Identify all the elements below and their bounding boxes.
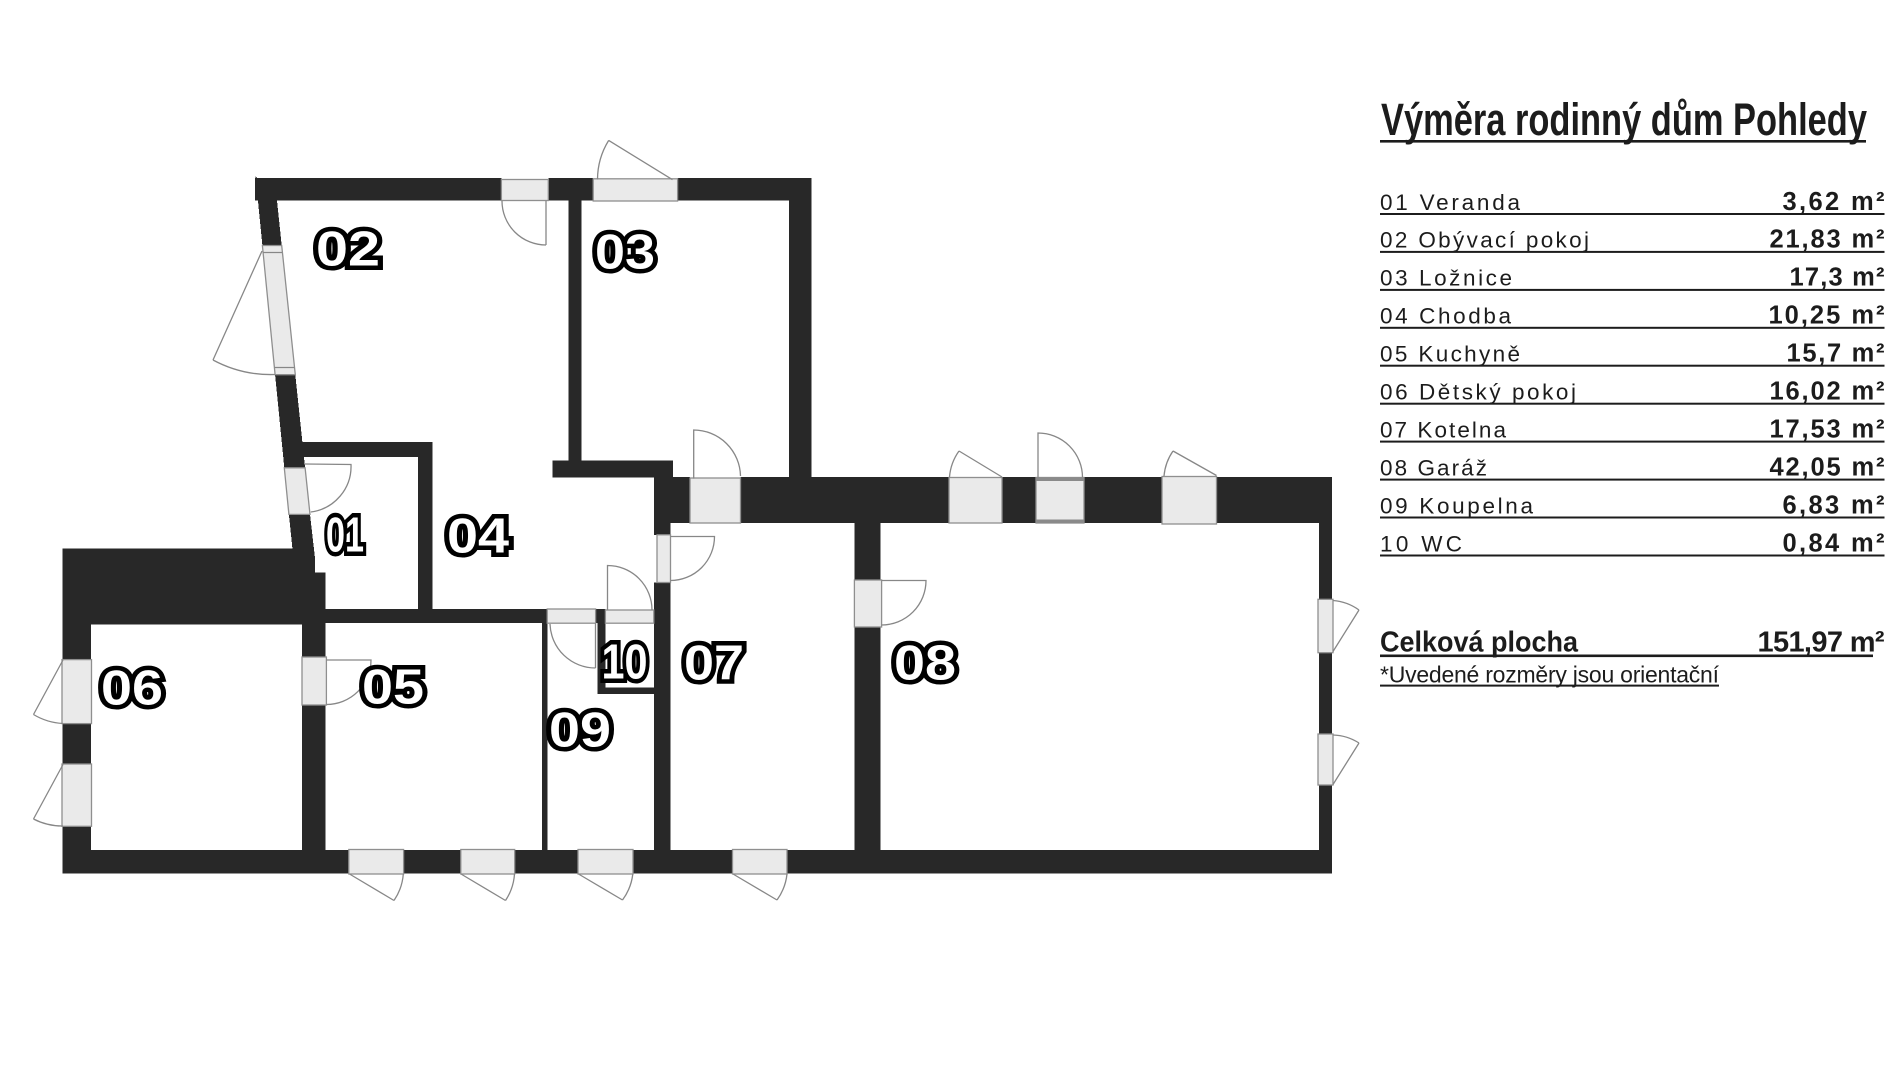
svg-text:21,83 m²: 21,83 m²: [1770, 226, 1885, 254]
svg-text:06 Dětský pokoj: 06 Dětský pokoj: [1380, 380, 1576, 405]
svg-text:16,02 m²: 16,02 m²: [1770, 378, 1885, 406]
svg-text:Výměra rodinný dům Pohledy: Výměra rodinný dům Pohledy: [1381, 94, 1867, 145]
svg-text:15,7 m²: 15,7 m²: [1787, 340, 1885, 368]
svg-text:06: 06: [101, 662, 163, 716]
svg-text:17,53 m²: 17,53 m²: [1770, 415, 1885, 443]
svg-text:03: 03: [595, 226, 655, 280]
svg-text:10 WC: 10 WC: [1380, 531, 1462, 556]
svg-text:10: 10: [602, 636, 648, 690]
svg-text:42,05 m²: 42,05 m²: [1770, 453, 1885, 481]
svg-text:04: 04: [447, 510, 509, 564]
svg-text:02 Obývací pokoj: 02 Obývací pokoj: [1380, 228, 1589, 253]
svg-text:01: 01: [326, 509, 364, 563]
svg-text:09 Koupelna: 09 Koupelna: [1380, 493, 1533, 518]
svg-text:05: 05: [362, 661, 424, 715]
svg-text:10,25 m²: 10,25 m²: [1769, 302, 1885, 330]
svg-text:03 Ložnice: 03 Ložnice: [1380, 266, 1512, 291]
svg-text:08 Garáž: 08 Garáž: [1380, 455, 1487, 480]
svg-text:3,62 m²: 3,62 m²: [1783, 188, 1885, 216]
svg-text:*Uvedené rozměry jsou orientač: *Uvedené rozměry jsou orientační: [1380, 661, 1720, 687]
svg-text:6,83 m²: 6,83 m²: [1783, 491, 1885, 519]
svg-text:07: 07: [684, 637, 744, 691]
svg-text:01 Veranda: 01 Veranda: [1380, 190, 1520, 215]
svg-text:0,84 m²: 0,84 m²: [1783, 529, 1885, 557]
svg-text:08: 08: [894, 637, 956, 691]
svg-text:151,97 m²: 151,97 m²: [1758, 627, 1885, 659]
svg-text:17,3 m²: 17,3 m²: [1790, 264, 1885, 292]
svg-text:09: 09: [549, 704, 611, 758]
svg-text:04 Chodba: 04 Chodba: [1380, 304, 1511, 329]
svg-text:Celková plocha: Celková plocha: [1380, 627, 1579, 659]
svg-text:07 Kotelna: 07 Kotelna: [1380, 417, 1506, 442]
svg-text:05 Kuchyně: 05 Kuchyně: [1380, 342, 1520, 367]
svg-text:02: 02: [316, 223, 380, 277]
